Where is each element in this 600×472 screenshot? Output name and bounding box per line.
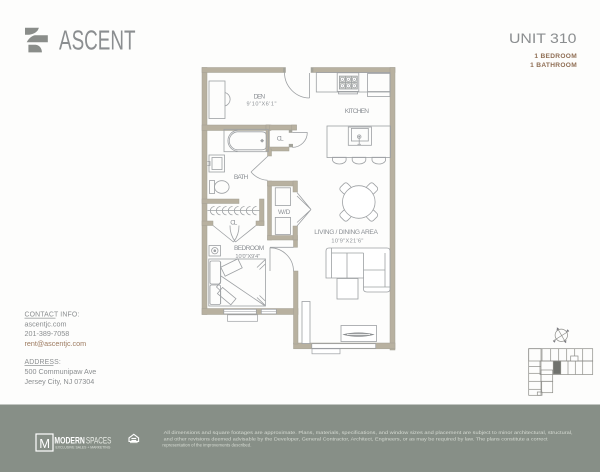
svg-text:ascentjc.com: ascentjc.com [25, 319, 67, 328]
svg-text:10'0"X9'4": 10'0"X9'4" [235, 254, 260, 260]
svg-text:EXCLUSIVE SALES + MARKETING: EXCLUSIVE SALES + MARKETING [56, 444, 111, 449]
svg-text:LIVING / DINING AREA: LIVING / DINING AREA [314, 229, 378, 236]
svg-text:Jersey City, NJ 07304: Jersey City, NJ 07304 [25, 377, 95, 386]
svg-text:500 Communipaw Ave: 500 Communipaw Ave [25, 367, 97, 376]
svg-text:CL: CL [277, 135, 284, 142]
svg-text:All dimensions and square foot: All dimensions and square footages are a… [164, 430, 573, 436]
svg-text:W/D: W/D [278, 209, 291, 216]
svg-text:BEDROOM: BEDROOM [234, 245, 264, 252]
svg-text:10'9"X21'6": 10'9"X21'6" [331, 238, 363, 244]
svg-text:and other revisions deemed adv: and other revisions deemed advisable by … [164, 436, 549, 442]
svg-text:M: M [39, 436, 50, 451]
svg-text:CL: CL [230, 219, 237, 226]
svg-text:201-389-7058: 201-389-7058 [25, 329, 70, 338]
svg-text:ASCENT: ASCENT [59, 24, 136, 55]
svg-text:1 BATHROOM: 1 BATHROOM [530, 62, 577, 69]
svg-text:1 BEDROOM: 1 BEDROOM [534, 53, 577, 60]
svg-text:KITCHEN: KITCHEN [345, 108, 369, 115]
svg-text:rent@ascentjc.com: rent@ascentjc.com [25, 339, 87, 348]
svg-text:DEN: DEN [254, 94, 266, 101]
svg-text:BATH: BATH [234, 174, 249, 181]
svg-text:ADDRESS:: ADDRESS: [25, 359, 61, 366]
svg-text:UNIT 310: UNIT 310 [509, 30, 577, 46]
svg-text:representation of the improvem: representation of the improvements descr… [162, 443, 251, 449]
svg-text:9'10"X6'1": 9'10"X6'1" [247, 101, 277, 107]
svg-text:CONTACT INFO:: CONTACT INFO: [25, 311, 80, 318]
